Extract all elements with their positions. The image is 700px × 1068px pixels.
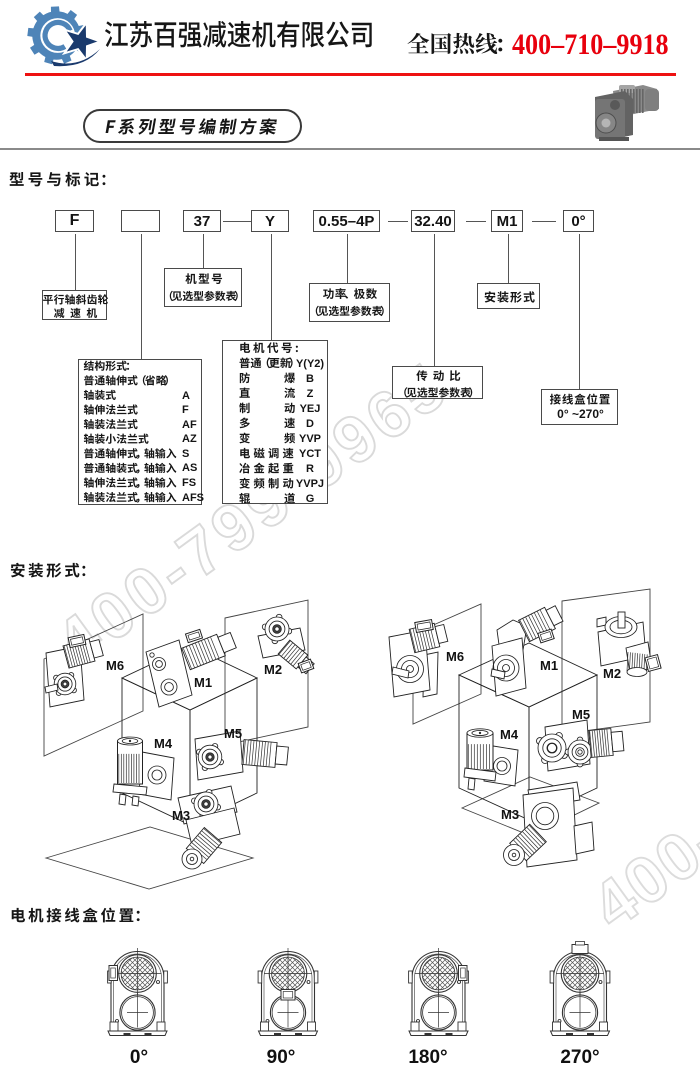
svg-text:M6: M6 (446, 649, 464, 664)
svg-text:M2: M2 (264, 662, 282, 677)
svg-text:M5: M5 (224, 726, 242, 741)
svg-text:180°: 180° (408, 1047, 447, 1068)
svg-text:M4: M4 (500, 727, 519, 742)
svg-text:90°: 90° (267, 1047, 296, 1068)
svg-text:0°: 0° (130, 1047, 148, 1068)
svg-text:M5: M5 (572, 707, 590, 722)
svg-text:M3: M3 (501, 807, 519, 822)
svg-text:270°: 270° (560, 1047, 599, 1068)
svg-text:M1: M1 (194, 675, 212, 690)
svg-text:M3: M3 (172, 808, 190, 823)
svg-text:M1: M1 (540, 658, 558, 673)
svg-text:M4: M4 (154, 736, 173, 751)
svg-text:M6: M6 (106, 658, 124, 673)
svg-text:M2: M2 (603, 666, 621, 681)
